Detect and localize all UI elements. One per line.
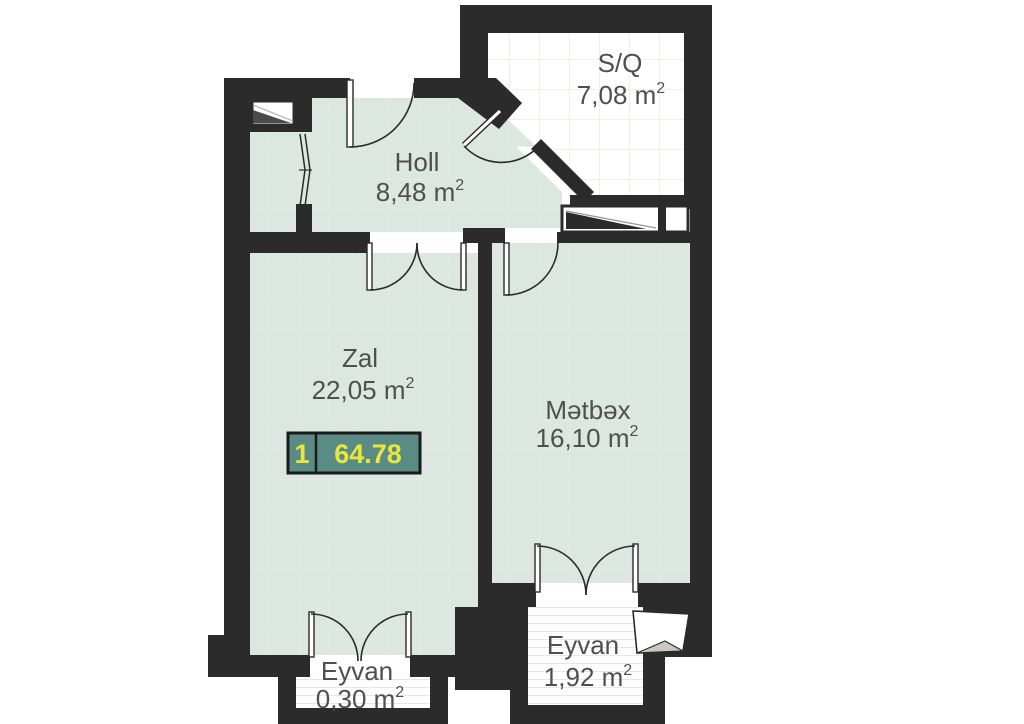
room-name-metbex: Mətbəx bbox=[545, 395, 630, 425]
room-area-sq: 7,08 m2 bbox=[577, 80, 666, 110]
room-name-holl: Holl bbox=[395, 147, 440, 177]
room-name-sq: S/Q bbox=[598, 48, 643, 78]
folded-corner-marker bbox=[633, 611, 689, 653]
unit-total-area: 64.78 bbox=[334, 439, 402, 469]
room-area-metbex: 16,10 m2 bbox=[536, 423, 639, 453]
floors bbox=[250, 20, 690, 708]
room-area-zal: 22,05 m2 bbox=[312, 375, 415, 405]
room-name-eyvan-left: Eyvan bbox=[321, 656, 393, 686]
shaft-below-sq bbox=[562, 206, 688, 232]
shaft-top-left bbox=[252, 101, 294, 125]
threshold-entrance bbox=[349, 78, 415, 98]
room-name-eyvan-right: Eyvan bbox=[547, 630, 619, 660]
floor-plan: 1 64.78 S/Q 7,08 m2 Holl 8,48 m2 Zal 22,… bbox=[0, 0, 1024, 724]
room-area-eyvan-left: 0,30 m2 bbox=[316, 684, 405, 714]
threshold-metbex-door bbox=[505, 228, 560, 243]
room-name-zal: Zal bbox=[342, 343, 378, 373]
unit-badge: 1 64.78 bbox=[288, 433, 420, 473]
unit-number: 1 bbox=[294, 439, 309, 469]
room-area-holl: 8,48 m2 bbox=[376, 177, 465, 207]
room-area-eyvan-right: 1,92 m2 bbox=[544, 662, 633, 692]
floor-plan-page: 1 64.78 S/Q 7,08 m2 Holl 8,48 m2 Zal 22,… bbox=[0, 0, 1024, 724]
